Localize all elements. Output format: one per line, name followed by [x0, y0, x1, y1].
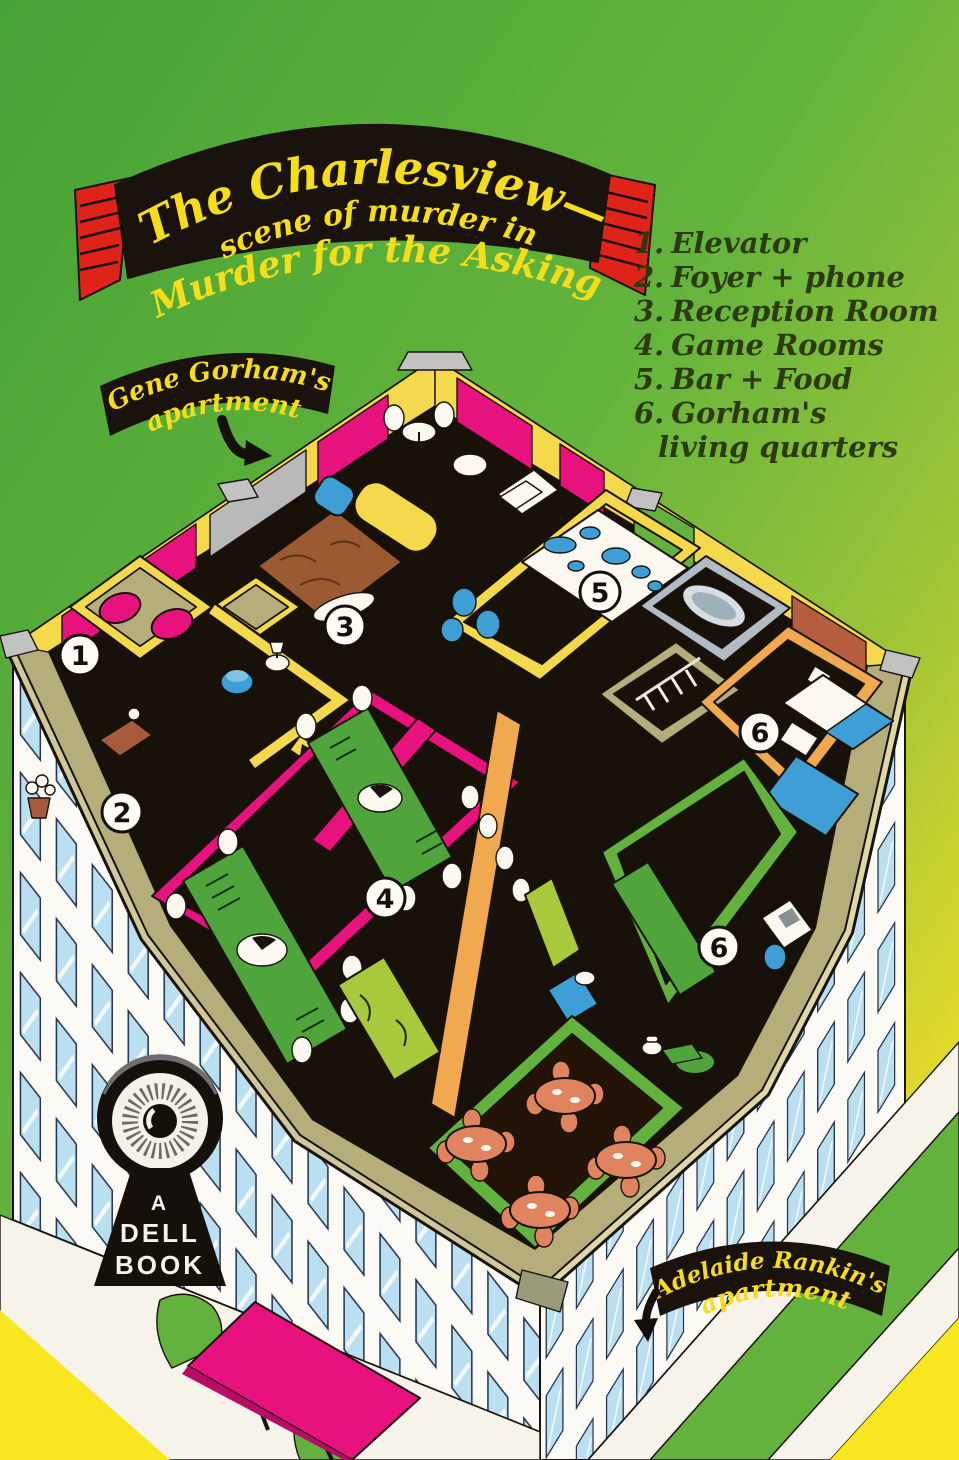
- svg-text:2: 2: [113, 798, 132, 829]
- dell-logo-line1: A: [151, 1192, 169, 1215]
- room-marker-1: 1: [60, 635, 100, 675]
- svg-text:6: 6: [710, 933, 729, 964]
- parapet-cap-top: [398, 352, 472, 370]
- legend-item-6-line2: living quarters: [658, 430, 898, 464]
- chair-blue-2: [476, 610, 500, 638]
- table-lamp: [128, 708, 140, 720]
- desk-chair-blue: [764, 944, 786, 970]
- book-back-cover: 1 2 3 4 5 6 6: [0, 0, 959, 1460]
- room-marker-6-living: 6: [699, 927, 739, 967]
- legend-item-6: 6.Gorham's: [634, 396, 826, 430]
- dell-logo-line2: DELL: [120, 1218, 200, 1248]
- legend-item-4: 4.Game Rooms: [634, 328, 884, 362]
- svg-text:1: 1: [71, 641, 90, 672]
- hall-chair-1: [461, 785, 479, 809]
- dell-logo-line3: BOOK: [115, 1250, 205, 1280]
- room-marker-6-bedroom: 6: [740, 712, 780, 752]
- legend-item-2: 2.Foyer + phone: [633, 260, 905, 294]
- charlesview-map: 1 2 3 4 5 6 6: [0, 0, 959, 1460]
- drum-stool-blue: [221, 670, 253, 694]
- chair-blue-3: [441, 618, 463, 642]
- svg-text:4: 4: [376, 884, 395, 915]
- chair-blue-1: [452, 588, 476, 616]
- room-marker-2: 2: [102, 792, 142, 832]
- svg-text:5: 5: [591, 578, 610, 609]
- room-marker-4: 4: [365, 878, 405, 918]
- hall-chair-3: [496, 846, 514, 870]
- legend-item-1: 1.Elevator: [634, 226, 809, 260]
- svg-text:6: 6: [751, 718, 770, 749]
- svg-text:3: 3: [336, 612, 355, 643]
- hall-chair-2: [479, 814, 497, 838]
- room-marker-3: 3: [325, 606, 365, 646]
- room-marker-5: 5: [580, 572, 620, 612]
- end-table: [575, 971, 595, 985]
- legend-item-3: 3.Reception Room: [634, 294, 939, 328]
- hassock: [453, 454, 487, 476]
